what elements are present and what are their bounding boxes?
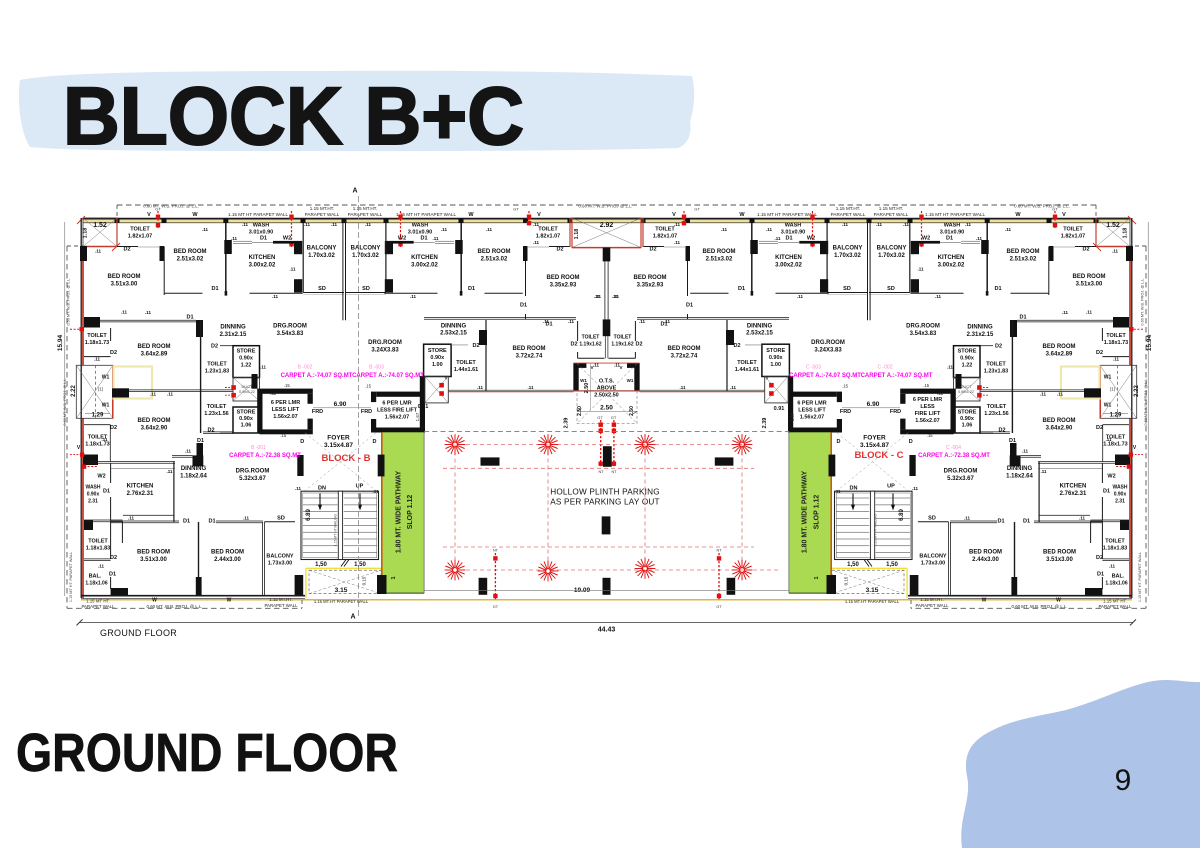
- svg-text:1.70x3.02: 1.70x3.02: [308, 253, 335, 259]
- svg-text:V: V: [672, 212, 676, 218]
- svg-text:BED ROOM: BED ROOM: [634, 275, 667, 281]
- svg-text:3.00x2.02: 3.00x2.02: [249, 263, 276, 269]
- svg-text:D1: D1: [186, 315, 193, 321]
- svg-text:0.60 MT .W.B. PROJ. @ L.L: 0.60 MT .W.B. PROJ. @ L.L: [1012, 604, 1067, 609]
- svg-text:LESS FIRE LIFT: LESS FIRE LIFT: [377, 408, 418, 414]
- svg-text:3.54x3.83: 3.54x3.83: [910, 331, 937, 337]
- svg-text:2.44x3.00: 2.44x3.00: [972, 557, 999, 563]
- svg-text:TOILET: TOILET: [737, 360, 757, 366]
- svg-text:WASH: WASH: [1113, 485, 1128, 491]
- svg-text:TOILET: TOILET: [1105, 539, 1125, 545]
- svg-text:BED ROOM: BED ROOM: [1043, 418, 1076, 424]
- svg-text:DRG.ROOM: DRG.ROOM: [236, 469, 270, 475]
- svg-text:0.15: 0.15: [844, 576, 849, 585]
- svg-text:BED ROOM: BED ROOM: [108, 274, 141, 280]
- svg-text:.11: .11: [1057, 392, 1064, 397]
- svg-text:.11: .11: [486, 227, 493, 232]
- svg-text:1.18x1.73: 1.18x1.73: [1104, 340, 1128, 346]
- svg-text:PARAPET WALL: PARAPET WALL: [305, 212, 340, 217]
- svg-text:V: V: [1062, 212, 1066, 218]
- svg-text:W: W: [227, 598, 232, 604]
- svg-text:.11: .11: [304, 222, 311, 227]
- svg-text:.15: .15: [284, 383, 290, 388]
- svg-text:.15: .15: [365, 384, 371, 389]
- svg-text:STORE: STORE: [237, 410, 256, 416]
- svg-text:B -003: B -003: [369, 365, 384, 371]
- svg-text:SD: SD: [928, 516, 936, 522]
- svg-text:D2: D2: [556, 247, 563, 253]
- svg-text:2.50x2.50: 2.50x2.50: [594, 393, 618, 399]
- svg-text:BED ROOM: BED ROOM: [478, 249, 511, 255]
- svg-text:3.01x0.90: 3.01x0.90: [781, 230, 805, 236]
- svg-text:TOILET: TOILET: [207, 362, 227, 368]
- svg-text:DRG.ROOM: DRG.ROOM: [811, 340, 845, 346]
- svg-text:.11: .11: [947, 365, 954, 370]
- svg-text:0.90x1.22: 0.90x1.22: [239, 390, 255, 394]
- svg-text:FIRE LIFT: FIRE LIFT: [915, 411, 941, 417]
- svg-text:FRD: FRD: [312, 409, 323, 415]
- svg-text:V: V: [537, 212, 541, 218]
- svg-text:D1: D1: [994, 286, 1001, 292]
- svg-text:.11: .11: [976, 236, 983, 241]
- svg-text:GROUND FLOOR: GROUND FLOOR: [16, 723, 398, 783]
- svg-text:FRD: FRD: [361, 409, 372, 415]
- svg-text:BED ROOM: BED ROOM: [1073, 274, 1106, 280]
- svg-text:1.23x1.56: 1.23x1.56: [204, 411, 228, 417]
- svg-text:1.06: 1.06: [241, 423, 252, 429]
- svg-text:DINNING: DINNING: [441, 324, 467, 330]
- svg-text:2.92: 2.92: [600, 222, 614, 229]
- svg-text:1.23x1.56: 1.23x1.56: [984, 411, 1008, 417]
- svg-text:1.23x1.83: 1.23x1.83: [984, 369, 1008, 375]
- svg-text:1.15 MT.HT.: 1.15 MT.HT.: [836, 206, 861, 211]
- svg-text:1.18x1.83: 1.18x1.83: [1103, 546, 1127, 552]
- svg-text:D1: D1: [1023, 519, 1030, 525]
- svg-text:.11: .11: [166, 469, 173, 474]
- svg-text:.11: .11: [231, 236, 238, 241]
- svg-text:D2: D2: [1096, 350, 1103, 356]
- svg-text:2.50: 2.50: [600, 405, 613, 412]
- svg-text:BED ROOM: BED ROOM: [138, 418, 171, 424]
- svg-text:.11: .11: [1112, 249, 1119, 254]
- svg-text:NT: NT: [598, 470, 604, 474]
- svg-text:W2: W2: [283, 236, 291, 242]
- svg-text:1.73x3.00: 1.73x3.00: [268, 561, 292, 567]
- svg-text:A: A: [350, 614, 355, 621]
- svg-text:.11: .11: [372, 489, 379, 494]
- svg-text:3.54x3.83: 3.54x3.83: [277, 331, 304, 337]
- svg-text:2.50: 2.50: [577, 406, 583, 416]
- svg-text:3.24X3.83: 3.24X3.83: [814, 348, 842, 354]
- svg-text:SLOP 1.12: SLOP 1.12: [407, 495, 414, 530]
- svg-text:(1): (1): [1110, 387, 1116, 392]
- svg-text:0.90x: 0.90x: [960, 356, 975, 362]
- svg-text:1.56x2.07: 1.56x2.07: [273, 414, 297, 420]
- svg-text:AS PER PARKING LAY OUT: AS PER PARKING LAY OUT: [550, 498, 660, 507]
- svg-text:BALCONY: BALCONY: [877, 246, 907, 252]
- svg-text:2.53x2.15: 2.53x2.15: [746, 331, 773, 337]
- svg-text:5.32x3.67: 5.32x3.67: [239, 476, 266, 482]
- svg-text:DINNING: DINNING: [181, 466, 207, 472]
- svg-text:.11: .11: [730, 385, 737, 390]
- svg-text:D2: D2: [649, 247, 656, 253]
- svg-text:TOILET: TOILET: [986, 362, 1006, 368]
- svg-text:.11: .11: [272, 294, 279, 299]
- svg-text:W: W: [192, 212, 198, 218]
- svg-text:.11: .11: [679, 385, 686, 390]
- svg-text:UP: UP: [887, 483, 895, 489]
- svg-text:1.18x1.73: 1.18x1.73: [85, 442, 109, 448]
- svg-text:D: D: [300, 439, 304, 445]
- svg-text:2.39: 2.39: [762, 418, 768, 429]
- svg-text:TOILET: TOILET: [456, 360, 476, 366]
- svg-text:.11: .11: [365, 222, 372, 227]
- svg-text:1.18: 1.18: [574, 229, 580, 240]
- svg-text:6.89: 6.89: [306, 509, 312, 521]
- svg-text:0.90x: 0.90x: [769, 355, 784, 361]
- svg-text:.11: .11: [410, 294, 417, 299]
- svg-text:.11: .11: [917, 267, 924, 272]
- svg-text:FRD: FRD: [840, 409, 851, 415]
- svg-text:6 PER LMR: 6 PER LMR: [382, 401, 411, 407]
- svg-text:.11: .11: [242, 222, 249, 227]
- svg-text:3.15x4.87: 3.15x4.87: [324, 442, 353, 449]
- svg-text:.11: .11: [964, 516, 971, 521]
- svg-text:D: D: [909, 439, 913, 445]
- svg-text:BALCONY: BALCONY: [919, 554, 947, 560]
- svg-text:.11: .11: [1062, 310, 1069, 315]
- svg-text:1,50: 1,50: [847, 562, 859, 568]
- svg-text:D1: D1: [109, 572, 116, 578]
- svg-text:W: W: [1056, 598, 1061, 604]
- svg-text:44.43: 44.43: [598, 627, 616, 634]
- svg-text:.11: .11: [432, 236, 439, 241]
- svg-text:2.51x3.02: 2.51x3.02: [177, 257, 204, 263]
- svg-text:2.50: 2.50: [629, 406, 635, 416]
- svg-text:W2: W2: [1107, 474, 1115, 480]
- svg-text:CARPET A.:-74.07 SQ.MT: CARPET A.:-74.07 SQ.MT: [352, 373, 424, 379]
- svg-text:W1: W1: [1104, 403, 1112, 409]
- svg-text:.11: .11: [664, 319, 671, 324]
- svg-text:1.70x3.02: 1.70x3.02: [834, 253, 861, 259]
- svg-text:1.15 MT.HT.: 1.15 MT.HT.: [879, 206, 904, 211]
- svg-text:CARPET A.:-74.07 SQ.MT: CARPET A.:-74.07 SQ.MT: [789, 373, 861, 379]
- svg-text:1.19x1.62: 1.19x1.62: [579, 342, 601, 348]
- svg-text:1.18: 1.18: [83, 228, 89, 239]
- svg-text:1.15 MT HT RAILING: 1.15 MT HT RAILING: [334, 514, 338, 547]
- svg-text:D2: D2: [211, 344, 218, 350]
- svg-text:D2: D2: [472, 343, 479, 349]
- svg-text:.11: .11: [674, 240, 681, 245]
- svg-text:C -003: C -003: [806, 365, 821, 371]
- svg-text:1.73x3.00: 1.73x3.00: [921, 561, 945, 567]
- svg-text:.11: .11: [613, 294, 620, 299]
- svg-text:W: W: [982, 598, 987, 604]
- svg-text:DN: DN: [318, 485, 326, 491]
- svg-text:DN: DN: [850, 485, 858, 491]
- svg-text:.11: .11: [145, 310, 152, 315]
- svg-text:BALCONY: BALCONY: [351, 246, 381, 252]
- svg-text:3.15: 3.15: [866, 587, 879, 594]
- svg-text:W2: W2: [807, 236, 815, 242]
- svg-text:D2: D2: [207, 428, 214, 434]
- svg-text:DUCT: DUCT: [960, 384, 972, 389]
- svg-text:D1: D1: [103, 489, 110, 495]
- svg-text:W1: W1: [627, 378, 634, 383]
- svg-text:3.72x2.74: 3.72x2.74: [671, 354, 698, 360]
- svg-text:W1: W1: [102, 403, 110, 409]
- svg-text:.11: .11: [270, 391, 277, 396]
- svg-text:.11: .11: [937, 391, 944, 396]
- svg-text:D1: D1: [211, 286, 218, 292]
- svg-text:D1: D1: [785, 236, 792, 242]
- svg-text:1.15 MT HT RAILING: 1.15 MT HT RAILING: [873, 514, 877, 547]
- svg-text:NT: NT: [716, 549, 722, 553]
- svg-text:0.60 MT. W.B. PROJ. @ L.L: 0.60 MT. W.B. PROJ. @ L.L: [63, 378, 67, 425]
- svg-text:0.15: 0.15: [362, 576, 367, 585]
- svg-text:.11: .11: [1109, 564, 1116, 569]
- svg-text:5.32x3.67: 5.32x3.67: [947, 476, 974, 482]
- svg-text:3.24X3.83: 3.24X3.83: [371, 348, 399, 354]
- svg-text:WASH: WASH: [86, 485, 101, 491]
- svg-text:1,50: 1,50: [315, 562, 327, 568]
- svg-text:3.01x0.90: 3.01x0.90: [940, 230, 964, 236]
- svg-text:GT: GT: [611, 415, 617, 420]
- svg-text:W2: W2: [97, 474, 105, 480]
- svg-text:CARPET A.:-74.07 SQ.MT: CARPET A.:-74.07 SQ.MT: [281, 373, 353, 379]
- svg-text:FOYER: FOYER: [327, 435, 350, 442]
- svg-text:6.90: 6.90: [867, 401, 880, 408]
- svg-text:STORE: STORE: [766, 348, 785, 354]
- svg-text:1.00: 1.00: [770, 362, 781, 368]
- svg-text:W: W: [1015, 212, 1021, 218]
- svg-text:1.44x1.61: 1.44x1.61: [735, 367, 759, 373]
- svg-text:.11: .11: [774, 236, 781, 241]
- svg-text:.11: .11: [202, 227, 209, 232]
- svg-text:.11: .11: [1105, 437, 1112, 442]
- svg-text:1.22: 1.22: [962, 363, 973, 369]
- svg-text:1.15 MT HT PARAPET WALL: 1.15 MT HT PARAPET WALL: [228, 212, 288, 217]
- svg-text:DRG.ROOM: DRG.ROOM: [273, 324, 307, 330]
- svg-text:0.60 MT. W.B. PROJ. @ L.L: 0.60 MT. W.B. PROJ. @ L.L: [67, 278, 71, 325]
- svg-text:1: 1: [814, 576, 820, 579]
- svg-text:1.82x1.07: 1.82x1.07: [536, 234, 560, 240]
- svg-text:A: A: [352, 188, 357, 195]
- svg-text:15.94: 15.94: [57, 334, 64, 351]
- svg-text:3.00x2.02: 3.00x2.02: [938, 263, 965, 269]
- svg-text:V: V: [445, 376, 448, 381]
- svg-text:HOLLOW PLINTH PARKING: HOLLOW PLINTH PARKING: [550, 488, 660, 497]
- svg-text:1.56x2.07: 1.56x2.07: [915, 418, 939, 424]
- svg-text:LESS LIFT: LESS LIFT: [798, 408, 826, 414]
- svg-text:1.00: 1.00: [432, 362, 443, 368]
- svg-text:PARAPET WALL: PARAPET WALL: [264, 603, 298, 608]
- svg-text:FRD: FRD: [890, 409, 901, 415]
- svg-text:.11: .11: [568, 319, 575, 324]
- svg-text:WASH: WASH: [253, 223, 270, 229]
- svg-text:1.15 MT HT PARAPET WALL: 1.15 MT HT PARAPET WALL: [396, 212, 456, 217]
- svg-text:.11: .11: [527, 385, 534, 390]
- svg-text:2.76x2.31: 2.76x2.31: [1060, 491, 1087, 497]
- svg-text:BALCONY: BALCONY: [833, 246, 863, 252]
- svg-text:D2: D2: [123, 247, 130, 253]
- svg-text:.11: .11: [94, 357, 101, 362]
- svg-text:SD: SD: [887, 286, 895, 292]
- svg-text:DUCT: DUCT: [241, 384, 253, 389]
- svg-text:CARPET A.:-72.38 SQ.MT: CARPET A.:-72.38 SQ.MT: [918, 453, 990, 459]
- svg-text:3.64x2.90: 3.64x2.90: [1046, 426, 1073, 432]
- svg-text:1.82x1.07: 1.82x1.07: [1061, 234, 1085, 240]
- svg-text:1.18x2.64: 1.18x2.64: [1006, 474, 1033, 480]
- svg-text:D2: D2: [733, 343, 740, 349]
- svg-text:6 PER LMR: 6 PER LMR: [271, 400, 300, 406]
- svg-text:2.51x3.02: 2.51x3.02: [481, 257, 508, 263]
- svg-text:1.80 MT. WIDE PATHWAY: 1.80 MT. WIDE PATHWAY: [395, 471, 402, 554]
- svg-text:6 PER LMR: 6 PER LMR: [797, 401, 826, 407]
- svg-text:D1: D1: [686, 303, 693, 309]
- svg-text:D: D: [373, 439, 377, 445]
- svg-text:BED ROOM: BED ROOM: [137, 550, 170, 556]
- svg-text:0.60 MT .W.B. PROJ. @ L.L: 0.60 MT .W.B. PROJ. @ L.L: [147, 604, 202, 609]
- svg-text:1.56x2.07: 1.56x2.07: [385, 415, 409, 421]
- svg-text:DRG.ROOM: DRG.ROOM: [944, 469, 978, 475]
- svg-text:3.15x4.87: 3.15x4.87: [860, 442, 889, 449]
- svg-text:D2: D2: [570, 342, 577, 348]
- svg-text:2.44x3.00: 2.44x3.00: [214, 557, 241, 563]
- svg-text:2.31: 2.31: [1115, 499, 1125, 505]
- svg-text:DRG.ROOM: DRG.ROOM: [368, 340, 402, 346]
- svg-text:STORE: STORE: [428, 348, 447, 354]
- svg-text:.11: .11: [98, 564, 105, 569]
- svg-text:3.35x2.93: 3.35x2.93: [637, 283, 664, 289]
- svg-text:UP: UP: [356, 483, 364, 489]
- svg-text:.11: .11: [639, 319, 646, 324]
- svg-text:15.94: 15.94: [1146, 334, 1153, 351]
- svg-text:D2: D2: [998, 428, 1005, 434]
- svg-text:2.50: 2.50: [584, 383, 590, 394]
- svg-text:STORE: STORE: [958, 410, 977, 416]
- svg-text:C -004: C -004: [946, 445, 961, 451]
- svg-text:GT: GT: [694, 207, 700, 212]
- svg-text:1: 1: [391, 576, 397, 579]
- svg-text:TOILET: TOILET: [207, 404, 227, 410]
- svg-text:1.19x1.62: 1.19x1.62: [611, 342, 633, 348]
- svg-text:1.70x3.02: 1.70x3.02: [878, 253, 905, 259]
- svg-text:LESS: LESS: [920, 404, 935, 410]
- svg-text:.15: .15: [927, 433, 933, 438]
- svg-text:D2: D2: [1096, 425, 1103, 431]
- svg-text:.11: .11: [95, 249, 102, 254]
- svg-text:D1: D1: [738, 286, 745, 292]
- svg-text:1.82x1.07: 1.82x1.07: [653, 234, 677, 240]
- svg-text:3.35x2.93: 3.35x2.93: [550, 283, 577, 289]
- svg-text:.11: .11: [167, 392, 174, 397]
- svg-text:FOYER: FOYER: [863, 435, 886, 442]
- svg-text:TOILET: TOILET: [87, 333, 107, 339]
- svg-text:CARPET A.:-72.38 SQ.MT: CARPET A.:-72.38 SQ.MT: [229, 453, 301, 459]
- svg-text:.11: .11: [295, 486, 302, 491]
- svg-text:.11: .11: [903, 222, 910, 227]
- svg-text:D1: D1: [1019, 315, 1026, 321]
- svg-text:STORE: STORE: [237, 349, 256, 355]
- svg-text:BED ROOM: BED ROOM: [668, 346, 701, 352]
- svg-text:3.15: 3.15: [335, 587, 348, 594]
- svg-text:2.31: 2.31: [88, 499, 98, 505]
- svg-text:1.15 MT HT.: 1.15 MT HT.: [86, 598, 110, 603]
- svg-text:W: W: [152, 598, 157, 604]
- svg-text:0.91: 0.91: [418, 404, 429, 410]
- svg-text:BLOCK B+C: BLOCK B+C: [63, 71, 524, 162]
- svg-text:PARAPET WALL: PARAPET WALL: [348, 212, 383, 217]
- svg-text:.11: .11: [842, 222, 849, 227]
- svg-text:0.60 MT. W.B. PROJ @ L.L: 0.60 MT. W.B. PROJ @ L.L: [578, 204, 632, 209]
- svg-text:BED ROOM: BED ROOM: [1007, 249, 1040, 255]
- svg-text:3.64x2.89: 3.64x2.89: [1046, 352, 1073, 358]
- svg-text:D1: D1: [183, 519, 190, 525]
- svg-text:SD: SD: [277, 516, 285, 522]
- svg-text:0.90x: 0.90x: [239, 356, 254, 362]
- svg-text:D2: D2: [1082, 247, 1089, 253]
- svg-text:D2: D2: [635, 342, 642, 348]
- svg-text:WASH: WASH: [785, 223, 802, 229]
- svg-text:2.22: 2.22: [71, 385, 77, 397]
- svg-text:BAL.: BAL.: [89, 574, 102, 580]
- svg-text:V: V: [619, 365, 622, 370]
- svg-text:KITCHEN: KITCHEN: [411, 255, 438, 261]
- svg-text:TOILET: TOILET: [1106, 333, 1126, 339]
- svg-text:.11: .11: [243, 516, 250, 521]
- svg-text:3.64x2.89: 3.64x2.89: [141, 352, 168, 358]
- svg-text:2.31x2.15: 2.31x2.15: [220, 332, 247, 338]
- svg-text:.11: .11: [331, 222, 338, 227]
- svg-text:3.01x0.90: 3.01x0.90: [249, 230, 273, 236]
- svg-text:GT: GT: [513, 207, 519, 212]
- svg-text:TOILET: TOILET: [987, 404, 1007, 410]
- svg-text:.11: .11: [721, 227, 728, 232]
- svg-text:BALCONY: BALCONY: [266, 554, 294, 560]
- svg-text:1.67: 1.67: [790, 412, 795, 421]
- svg-text:.11: .11: [121, 310, 128, 315]
- svg-text:1.15 MT.HT PARAPET WALL: 1.15 MT.HT PARAPET WALL: [314, 599, 369, 604]
- svg-text:.11: .11: [1113, 357, 1120, 362]
- svg-text:KITCHEN: KITCHEN: [938, 255, 965, 261]
- svg-text:1,50: 1,50: [886, 562, 898, 568]
- svg-text:3.01x0.90: 3.01x0.90: [408, 230, 432, 236]
- svg-text:3.51x3.00: 3.51x3.00: [140, 557, 167, 563]
- svg-text:0.90x: 0.90x: [87, 492, 100, 498]
- svg-text:1.15 MT.HT.: 1.15 MT.HT.: [310, 206, 335, 211]
- svg-text:D1: D1: [520, 303, 527, 309]
- svg-text:3.51x3.00: 3.51x3.00: [1076, 282, 1103, 288]
- svg-text:3.51x3.00: 3.51x3.00: [111, 282, 138, 288]
- svg-text:TOILET: TOILET: [614, 335, 632, 341]
- svg-text:1.15 MT HT. PARAPET WALL: 1.15 MT HT. PARAPET WALL: [69, 552, 73, 602]
- svg-text:1.22: 1.22: [241, 363, 252, 369]
- svg-text:.11: .11: [1086, 310, 1093, 315]
- svg-text:DINNING: DINNING: [747, 324, 773, 330]
- svg-text:CARPET A.:-74.07 SQ.MT: CARPET A.:-74.07 SQ.MT: [861, 373, 933, 379]
- svg-text:1.67: 1.67: [415, 412, 420, 421]
- svg-text:BED ROOM: BED ROOM: [138, 344, 171, 350]
- svg-text:C -002: C -002: [877, 365, 892, 371]
- svg-text:.11: .11: [834, 489, 841, 494]
- svg-text:D2: D2: [995, 344, 1002, 350]
- svg-text:BED ROOM: BED ROOM: [1043, 550, 1076, 556]
- svg-text:.11: .11: [533, 222, 540, 227]
- svg-text:D2: D2: [110, 350, 117, 356]
- svg-text:DINNING: DINNING: [220, 325, 246, 331]
- svg-text:.11: .11: [477, 385, 484, 390]
